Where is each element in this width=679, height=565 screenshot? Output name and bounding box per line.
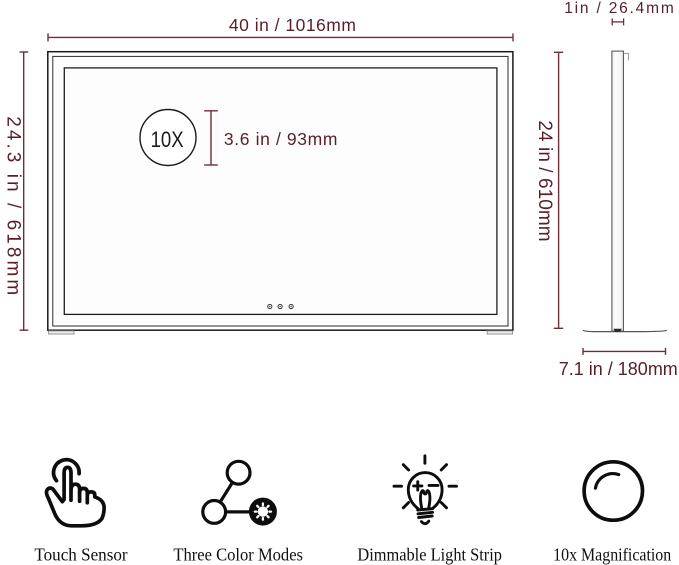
svg-text:10x Magnification: 10x Magnification	[553, 545, 671, 565]
svg-text:40 in / 1016mm: 40 in / 1016mm	[229, 15, 356, 35]
svg-text:1in / 26.4mm: 1in / 26.4mm	[564, 0, 674, 17]
svg-text:Three Color Modes: Three Color Modes	[173, 545, 303, 565]
svg-text:7.1 in / 180mm: 7.1 in / 180mm	[559, 359, 678, 379]
svg-text:Touch Sensor: Touch Sensor	[34, 545, 127, 565]
svg-text:24 in / 610mm: 24 in / 610mm	[534, 120, 555, 241]
svg-text:10X: 10X	[151, 127, 184, 152]
svg-text:Dimmable Light Strip: Dimmable Light Strip	[357, 545, 502, 565]
svg-text:3.6 in / 93mm: 3.6 in / 93mm	[224, 129, 338, 149]
svg-text:24.3 in / 618mm: 24.3 in / 618mm	[3, 116, 24, 295]
